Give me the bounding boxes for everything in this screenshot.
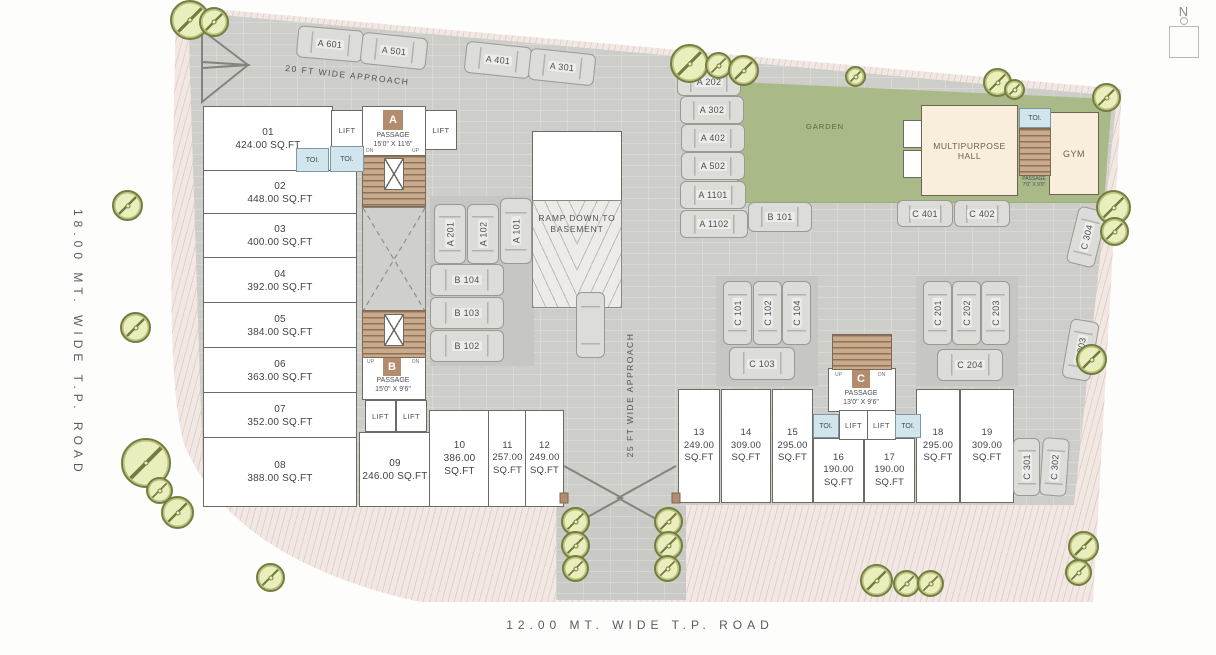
parking-label: A 502 [699,161,728,171]
parking-label: C 202 [962,298,972,328]
lift-b1: LIFT [365,400,396,432]
hall-stair-treads [1019,128,1051,176]
parking-c302: C 302 [1039,437,1070,497]
parking-c401: C 401 [897,200,953,227]
tree-icon [199,7,229,37]
parking-a302: A 302 [680,96,744,124]
tree-icon [1092,83,1121,112]
tree-icon [917,570,944,597]
parking-label: B 103 [452,308,481,318]
hall-porch-1 [903,120,923,148]
parking-label: A 302 [698,105,727,115]
parking-label: B 104 [452,275,481,285]
tree-icon [728,55,759,86]
gate-icon-top [196,22,260,110]
parking-label: A 102 [478,220,488,249]
tree-icon [654,555,681,582]
tree-icon [112,190,143,221]
parking-c102: C 102 [753,281,782,345]
north-square [1169,26,1199,58]
tree-icon [1065,559,1092,586]
parking-label: A 501 [379,45,408,58]
parking-label: C 401 [910,209,940,219]
open-court [532,131,622,203]
parking-label: C 101 [733,298,743,328]
ramp-area: RAMP DOWN TO BASEMENT [532,200,622,308]
shop-07: 07352.00 SQ.FT [203,392,357,439]
approach-label-side: 25 FT WIDE APPROACH [625,315,635,475]
north-indicator: N [1162,4,1206,58]
tree-icon [562,555,589,582]
toi-2: TOI. [330,146,364,172]
parking-b102: B 102 [430,330,504,362]
shop-11: 11257.00 SQ.FT [488,410,527,507]
tree-icon [161,496,194,529]
parking-c101: C 101 [723,281,752,345]
shop-04: 04392.00 SQ.FT [203,257,357,304]
lift-b2: LIFT [396,400,427,432]
stair-c-treads [832,334,892,370]
toi-4: TOI. [895,414,921,438]
shop-10: 10386.00 SQ.FT [429,410,490,507]
stair-a-passage-label: PASSAGE15'0" X 11'6" [356,132,430,150]
stair-b-xbox [384,314,404,346]
stair-a-badge: A [383,110,403,130]
gym: GYM [1049,112,1099,195]
ramp-label: RAMP DOWN TO BASEMENT [533,213,621,236]
parking-label: B 102 [452,341,481,351]
parking-a502: A 502 [681,152,745,180]
tree-icon [860,564,893,597]
parking-c104: C 104 [782,281,811,345]
parking-label: B 101 [765,212,794,222]
tree-icon [1004,79,1025,100]
stair-c-dn: DN [878,372,885,378]
parking-c103: C 103 [729,347,795,380]
tree-icon [256,563,285,592]
stair-b-badge: B [383,358,401,376]
site-plan: GARDEN 18.00 MT. WIDE T.P. ROAD 12.00 MT… [0,0,1216,655]
parking-a501: A 501 [360,32,429,71]
road-label-left: 18.00 MT. WIDE T.P. ROAD [71,209,85,449]
tree-icon [1076,344,1107,375]
shop-02: 02448.00 SQ.FT [203,170,357,215]
stair-a-xbox [384,158,404,190]
parking-a401: A 401 [464,41,533,80]
north-letter: N [1162,4,1206,19]
shop-14: 14309.00 SQ.FT [721,389,771,503]
parking-label: C 201 [933,298,943,328]
shop-06: 06363.00 SQ.FT [203,347,357,394]
tree-icon [1100,217,1129,246]
stair-c-up: UP [835,372,842,378]
parking-label: C 203 [991,298,1001,328]
parking-a301: A 301 [528,48,597,87]
parking-label: A 1102 [697,219,730,229]
parking-a102: A 102 [467,204,499,264]
parking-label: A 601 [315,38,344,50]
road-label-bottom: 12.00 MT. WIDE T.P. ROAD [440,618,840,632]
stair-b-passage-label: PASSAGE15'0" X 9'6" [356,377,430,395]
tree-icon [893,570,920,597]
shop-15: 15295.00 SQ.FT [772,389,813,503]
toi-1: TOI. [296,148,329,172]
car-at-ramp [576,292,605,358]
parking-label: A 1101 [696,190,729,200]
parking-label: A 201 [445,220,455,249]
parking-c402: C 402 [954,200,1010,227]
parking-label: A 401 [483,54,512,67]
tree-icon [845,66,866,87]
parking-label: C 204 [955,360,985,370]
parking-a601: A 601 [296,25,365,63]
hall-passage-label: PASSAGE7'0" X 9'0" [1013,176,1055,189]
parking-b104: B 104 [430,264,504,296]
shop-19: 19309.00 SQ.FT [960,389,1014,503]
shop-16: 16190.00 SQ.FT [813,438,864,503]
parking-label: C 103 [747,359,777,369]
parking-a402: A 402 [681,124,745,152]
parking-label: C 102 [763,298,773,328]
parking-c203: C 203 [981,281,1010,345]
stair-a-dn: DN [366,148,373,154]
parking-c202: C 202 [952,281,981,345]
parking-label: C 301 [1022,452,1032,482]
garden-label: GARDEN [795,122,855,131]
parking-label: A 301 [547,61,576,74]
stair-b-dn: DN [412,359,419,365]
shop-03: 03400.00 SQ.FT [203,213,357,259]
lift-c2: LIFT [867,410,896,440]
parking-label: C 304 [1078,221,1095,252]
parking-label: C 402 [967,209,997,219]
toi-hall: TOI. [1019,108,1051,128]
parking-label: C 302 [1048,452,1060,482]
shop-17: 17190.00 SQ.FT [864,438,915,503]
parking-c204: C 204 [937,349,1003,381]
parking-label: C 104 [792,298,802,328]
parking-a1102: A 1102 [680,210,748,238]
stair-b-up: UP [367,359,374,365]
tree-icon [120,312,151,343]
parking-c301: C 301 [1013,438,1040,496]
parking-label: A 101 [511,217,521,246]
lift-c1: LIFT [839,410,868,440]
shaft-cross-icon [363,208,425,311]
shop-05: 05384.00 SQ.FT [203,302,357,349]
open-shaft [362,207,426,312]
toi-3: TOI. [813,414,839,438]
parking-c201: C 201 [923,281,952,345]
parking-b103: B 103 [430,297,504,329]
stair-a-up: UP [412,148,419,154]
multipurpose-hall: MULTIPURPOSE HALL [921,105,1018,196]
hall-porch-2 [903,150,923,178]
parking-a1101: A 1101 [680,181,746,209]
shop-08: 08388.00 SQ.FT [203,437,357,507]
shop-09: 09246.00 SQ.FT [359,432,431,507]
stair-c-badge: C [852,370,870,388]
parking-label: A 402 [699,133,728,143]
tree-icon [1068,531,1099,562]
parking-a201: A 201 [434,204,466,264]
shop-18: 18295.00 SQ.FT [916,389,960,503]
parking-a101: A 101 [500,198,532,264]
tree-icon [670,44,709,83]
stair-c-passage-label: PASSAGE13'0" X 9'6" [824,390,898,408]
parking-b101: B 101 [748,202,812,232]
